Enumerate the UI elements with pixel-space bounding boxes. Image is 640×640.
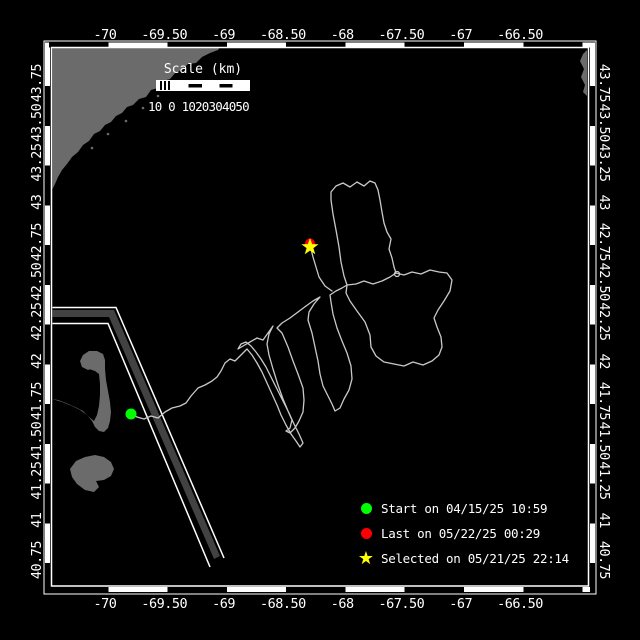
lat-tick-label-right: 43.50 <box>596 104 612 143</box>
legend-item-label: Start on 04/15/25 10:59 <box>381 501 547 516</box>
legend-item-label: Last on 05/22/25 00:29 <box>381 526 540 541</box>
lon-tick-label-bottom: -67 <box>449 596 472 612</box>
shipping-lane <box>52 308 224 568</box>
lon-tick-label-bottom: -67.50 <box>379 596 425 612</box>
lane-separation-zone <box>52 310 220 559</box>
glider-track-map: -70-70-69.50-69.50-69-69-68.50-68.50-68-… <box>0 0 640 640</box>
lon-tick-label-top: -67.50 <box>379 27 425 43</box>
lat-tick-label-right: 41.50 <box>596 422 612 461</box>
lat-tick-label-right: 43.75 <box>596 64 612 103</box>
legend-item[interactable]: ★Selected on 05/21/25 22:14 <box>356 546 569 571</box>
legend-item[interactable]: Start on 04/15/25 10:59 <box>356 496 569 521</box>
lat-tick-label-left: 41 <box>29 512 45 528</box>
start-position-marker[interactable] <box>126 409 137 420</box>
lat-tick-label-left: 41.50 <box>29 421 45 460</box>
lat-tick-label-left: 40.75 <box>29 541 45 580</box>
lat-tick-label-left: 43.75 <box>29 64 45 103</box>
lon-tick-label-bottom: -69.50 <box>141 596 187 612</box>
legend-item-label: Selected on 05/21/25 22:14 <box>381 551 569 566</box>
scale-bar <box>157 81 250 91</box>
lat-tick-label-left: 42.75 <box>29 223 45 262</box>
track-main-path[interactable] <box>131 181 396 447</box>
lat-tick-label-left: 41.25 <box>29 461 45 500</box>
scale-bar-title: Scale (km) <box>150 62 256 77</box>
lat-tick-label-left: 42 <box>29 354 45 369</box>
legend-star-icon: ★ <box>356 550 376 568</box>
lat-tick-label-left: 43.50 <box>29 103 45 142</box>
lat-tick-label-left: 42.50 <box>29 262 45 301</box>
legend: Start on 04/15/25 10:59Last on 05/22/25 … <box>356 496 569 571</box>
coastline-east-sliver <box>580 50 587 96</box>
cape-cod-polygon <box>52 351 111 432</box>
lon-tick-label-top: -70 <box>94 27 117 43</box>
legend-item[interactable]: Last on 05/22/25 00:29 <box>356 521 569 546</box>
lon-tick-label-top: -69 <box>212 27 235 43</box>
lat-tick-label-right: 41 <box>596 513 612 529</box>
lat-tick-label-left: 43 <box>29 194 45 210</box>
lon-tick-label-bottom: -69 <box>212 596 235 612</box>
lon-tick-label-bottom: -70 <box>94 596 117 612</box>
lat-tick-label-right: 42 <box>596 354 612 369</box>
lat-tick-label-right: 41.25 <box>596 461 612 500</box>
lon-tick-label-top: -69.50 <box>141 27 187 43</box>
glider-track[interactable] <box>131 181 452 447</box>
lat-tick-label-right: 42.25 <box>596 302 612 341</box>
lat-tick-label-right: 40.75 <box>596 541 612 580</box>
lon-tick-label-top: -68 <box>331 27 354 43</box>
lat-tick-label-right: 43.25 <box>596 143 612 182</box>
lat-tick-label-right: 41.75 <box>596 382 612 421</box>
lon-tick-label-top: -66.50 <box>497 27 543 43</box>
selected-position-star-marker[interactable] <box>301 238 318 254</box>
lat-tick-label-right: 42.50 <box>596 263 612 302</box>
island-polygon <box>70 455 114 492</box>
land-polygons <box>52 47 587 492</box>
lat-tick-label-right: 42.75 <box>596 223 612 262</box>
track-selected-leg[interactable] <box>311 249 332 291</box>
track-east-loop[interactable] <box>346 270 452 366</box>
lat-tick-label-right: 43 <box>596 195 612 211</box>
legend-dot-icon <box>356 503 376 514</box>
lat-tick-label-left: 42.25 <box>29 302 45 341</box>
lon-tick-label-bottom: -68 <box>331 596 354 612</box>
legend-dot-icon <box>356 528 376 539</box>
scale-bar-tick-labels: 10 0 1020304050 <box>148 99 249 114</box>
lon-tick-label-top: -68.50 <box>260 27 306 43</box>
lon-tick-label-top: -67 <box>449 27 472 43</box>
lon-tick-label-bottom: -66.50 <box>497 596 543 612</box>
lat-tick-label-left: 41.75 <box>29 382 45 421</box>
lon-tick-label-bottom: -68.50 <box>260 596 306 612</box>
lat-tick-label-left: 43.25 <box>29 143 45 182</box>
